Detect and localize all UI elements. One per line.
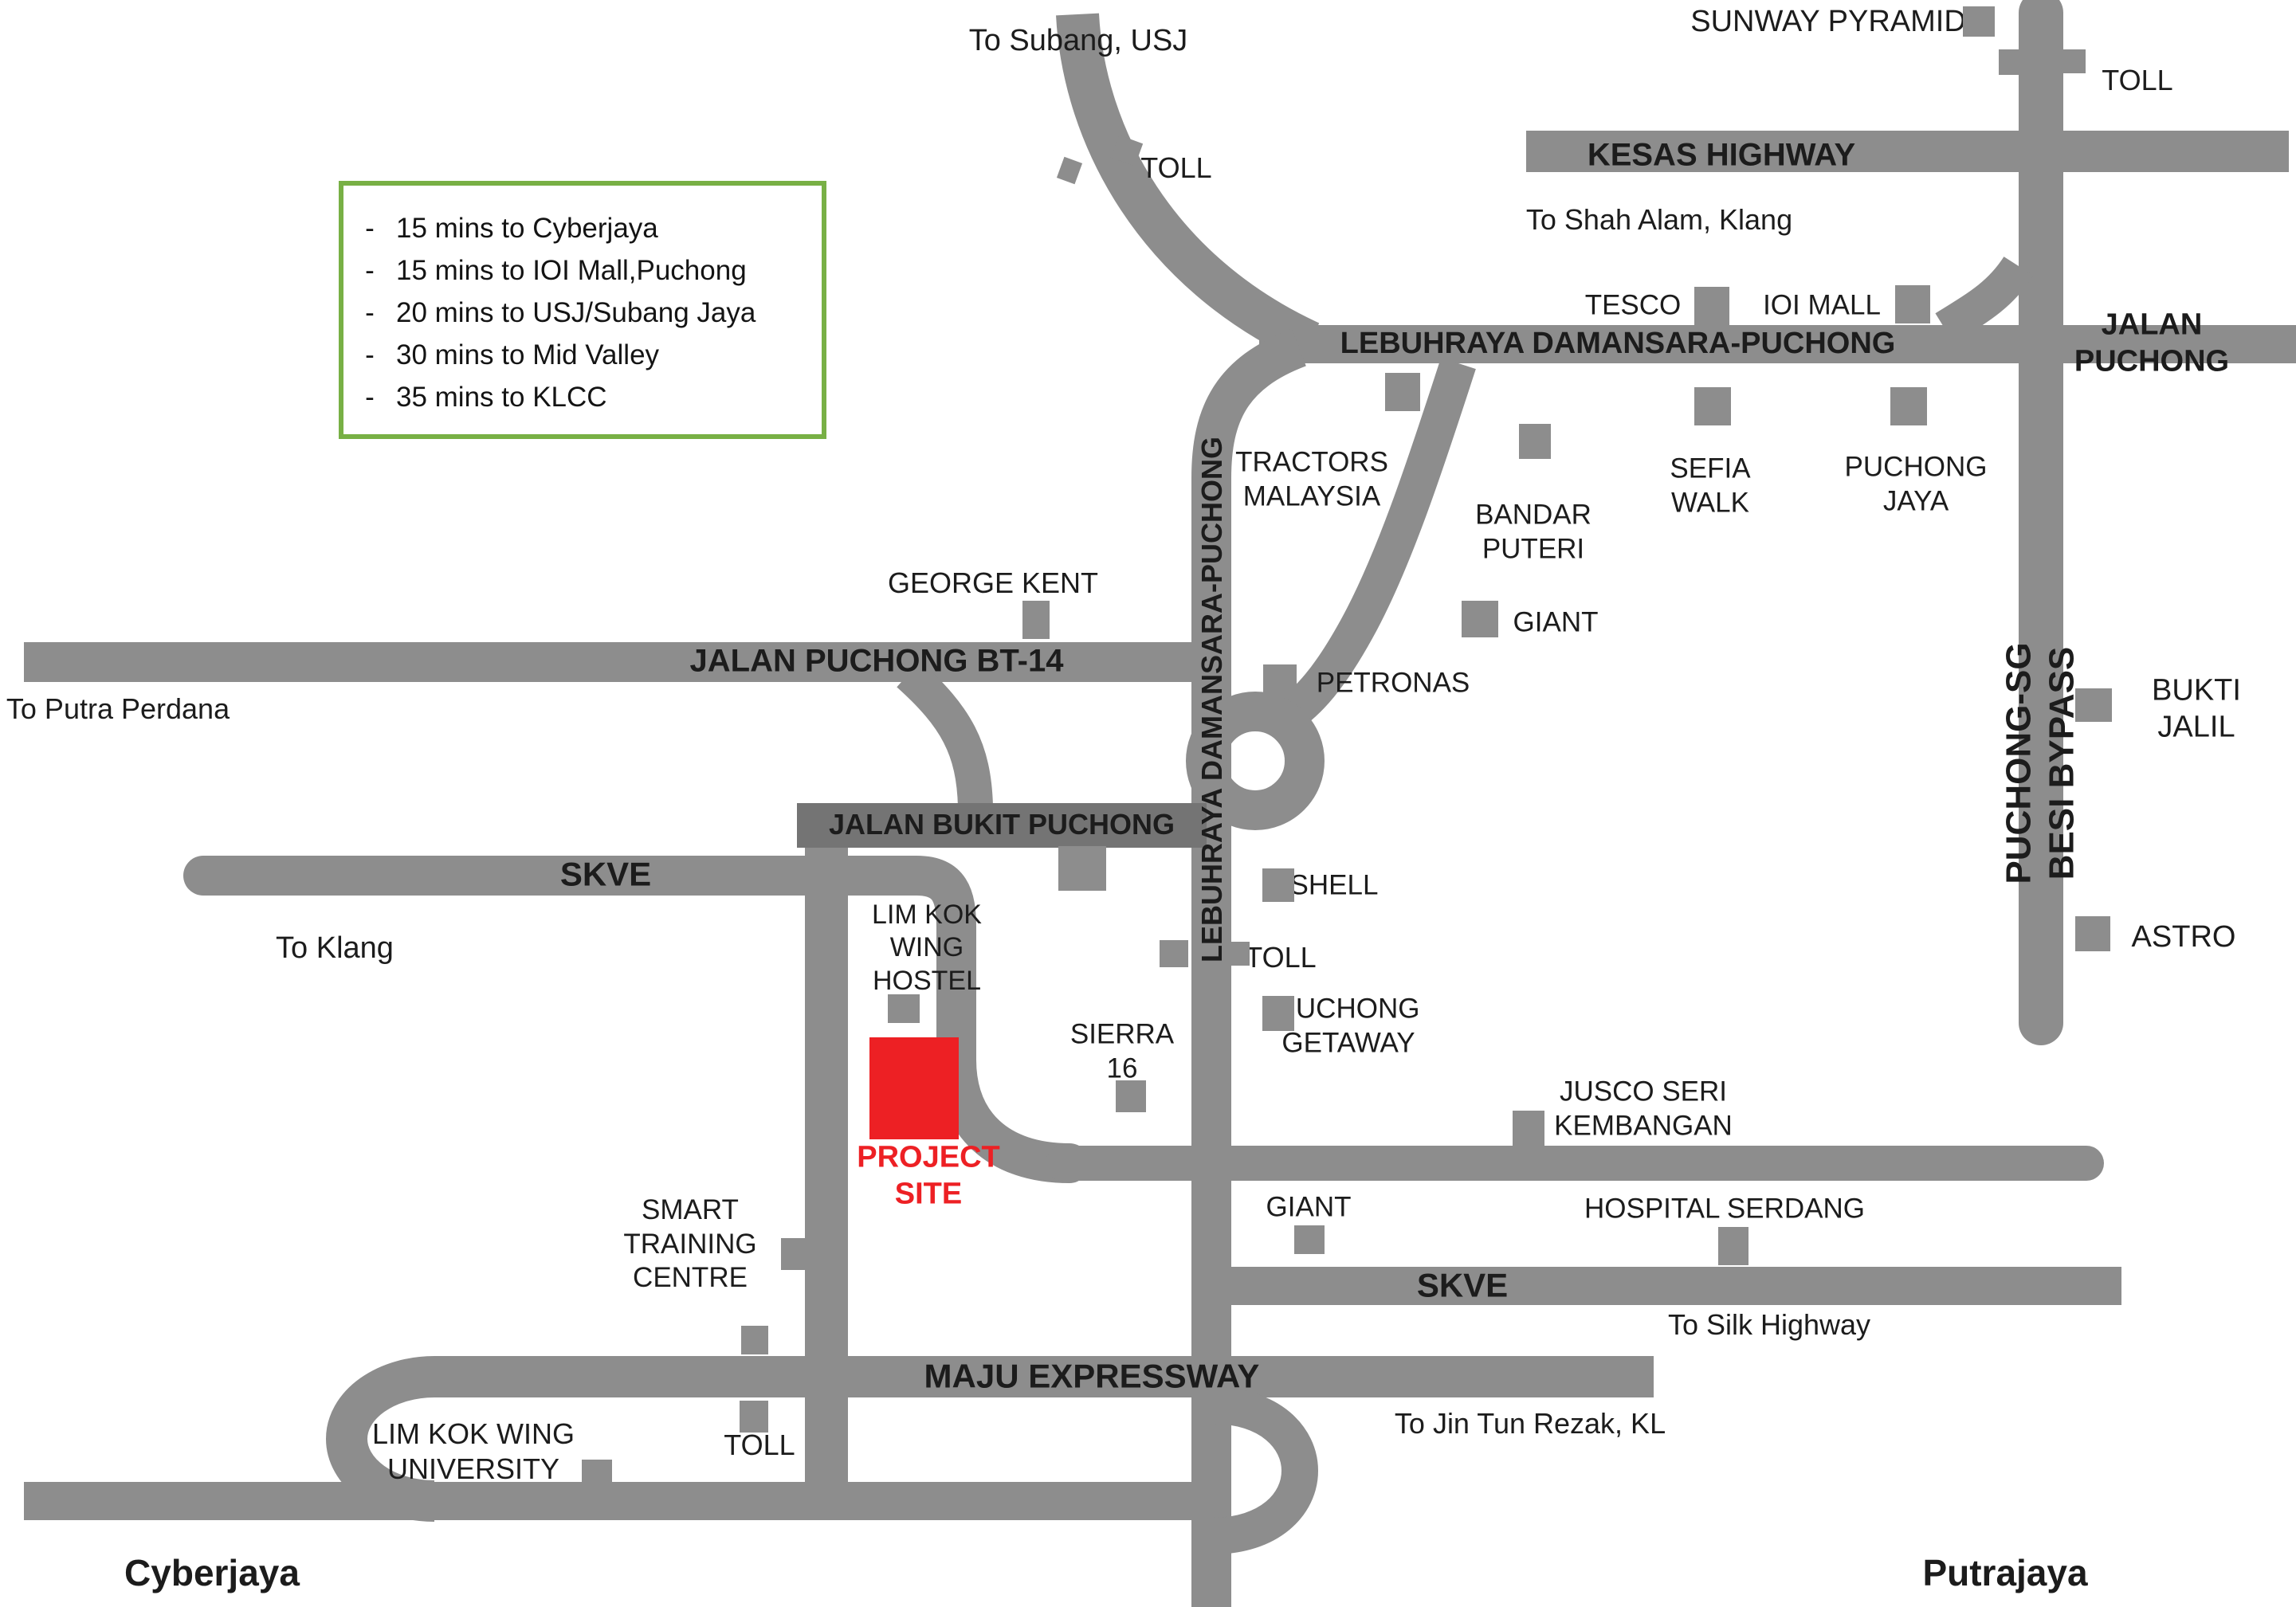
kesas-highway-label-label: KESAS HIGHWAY [1588,136,1855,175]
road-ldp-bypass-ramp [1945,266,2019,328]
tesco-marker [1694,287,1729,325]
legend-item-text: 35 mins to KLCC [396,382,822,414]
bandar-puteri-marker [1519,424,1551,459]
legend-item-text: 15 mins to Cyberjaya [396,213,822,245]
sefia-walk-label: SEFIA WALK [1670,452,1750,519]
sefia-walk-marker [1694,387,1731,425]
legend-bullet: - [343,339,396,371]
toll-ldp-label: TOLL [1245,940,1316,975]
tesco-label: TESCO [1585,289,1682,323]
sunway-pyramid-marker [1963,6,1995,37]
petronas-label: PETRONAS [1317,667,1470,701]
petronas-marker [1263,664,1297,698]
to-shah-alam-klang-label: To Shah Alam, Klang [1526,202,1792,237]
road-ldp-ramp [1285,363,1458,717]
maju-expressway-label-label: MAJU EXPRESSWAY [924,1355,1260,1396]
jalan-puchong-label-label: JALAN PUCHONG [2074,307,2229,381]
legend-bullet: - [343,297,396,329]
tractors-malaysia-label: TRACTORS MALAYSIA [1235,445,1388,513]
jalan-bukit-puchong-label-label: JALAN BUKIT PUCHONG [829,807,1175,842]
ioi-mall-label: IOI MALL [1763,289,1881,323]
toll-ldp-marker-2 [1227,942,1250,966]
project-site-marker [869,1037,959,1139]
george-kent-label: GEORGE KENT [888,566,1098,601]
bukti-jalil-label: BUKTI JALIL [2147,672,2247,747]
shell-label: SHELL [1290,869,1379,903]
giant-bandar-puteri-marker [1462,601,1498,637]
sierra-16-label: SIERRA 16 [1070,1017,1174,1085]
ldp-label-label: LEBUHRAYA DAMANSARA-PUCHONG [1340,325,1896,362]
giant-bandar-puteri-label: GIANT [1513,606,1599,641]
toll-kesas-marker-2 [2063,49,2086,73]
legend-item-4: -35 mins to KLCC [343,382,822,414]
legend-item-2: -20 mins to USJ/Subang Jaya [343,297,822,329]
skve-west-label-label: SKVE [560,853,651,894]
project-site-label: PROJECT SITE [857,1139,999,1213]
legend-item-1: -15 mins to IOI Mall,Puchong [343,255,822,287]
bandar-puteri-label: BANDAR PUTERI [1475,498,1592,566]
to-klang-label: To Klang [276,930,394,966]
skve-east-label-label: SKVE [1417,1264,1508,1305]
hospital-serdang-marker [1718,1227,1748,1265]
toll-maju-label: TOLL [724,1428,795,1463]
giant-serdang-marker [1294,1225,1325,1254]
lim-kok-wing-hostel-marker [888,994,920,1023]
legend-item-text: 30 mins to Mid Valley [396,339,822,371]
legend-item-text: 15 mins to IOI Mall,Puchong [396,255,822,287]
puchong-getaway-marker [1262,996,1294,1031]
road-bt14-branch [909,674,975,806]
to-subang-usj-label: To Subang, USJ [969,22,1188,59]
ioi-mall-marker [1895,285,1930,323]
astro-label: ASTRO [2132,919,2236,955]
jusco-seri-kembangan-marker [1513,1111,1544,1150]
lim-kok-wing-university-label: LIM KOK WING UNIVERSITY [372,1417,575,1487]
sunway-pyramid-label: SUNWAY PYRAMID [1690,3,1966,40]
location-map: -15 mins to Cyberjaya-15 mins to IOI Mal… [0,0,2296,1607]
to-putra-perdana-label: To Putra Perdana [6,692,230,727]
putrajaya-label: Putrajaya [1922,1550,2087,1595]
giant-serdang-label: GIANT [1266,1191,1352,1225]
smart-training-centre-marker [781,1238,811,1270]
legend-bullet: - [343,255,396,287]
toll-kesas-label: TOLL [2102,63,2172,98]
legend-bullet: - [343,213,396,245]
puchong-jaya-label: PUCHONG JAYA [1845,450,1988,518]
jusco-seri-kembangan-label: JUSCO SERI KEMBANGAN [1554,1075,1733,1143]
toll-ldp-marker [1160,940,1188,967]
toll-maju-marker [741,1326,768,1354]
puchong-jaya-marker [1890,387,1927,425]
to-silk-highway-label: To Silk Highway [1668,1307,1870,1342]
hospital-serdang-label: HOSPITAL SERDANG [1584,1193,1865,1227]
shell-marker [1262,868,1294,902]
jalan-bukit-puchong-building-marker [1058,846,1106,891]
puchong-sg-besi-bypass-label-label: PUCHONG-SG BESI BYPASS [1997,636,2082,892]
astro-marker [2075,916,2110,951]
george-kent-marker [1022,601,1050,639]
toll-kesas-marker [1999,49,2021,75]
toll-maju-marker-2 [740,1401,768,1433]
jalan-puchong-bt14-label-label: JALAN PUCHONG BT-14 [690,642,1064,681]
bukti-jalil-marker [2075,688,2112,722]
travel-time-list: -15 mins to Cyberjaya-15 mins to IOI Mal… [343,213,822,414]
legend-item-0: -15 mins to Cyberjaya [343,213,822,245]
legend-item-text: 20 mins to USJ/Subang Jaya [396,297,822,329]
lim-kok-wing-university-marker [582,1460,612,1493]
puchong-getaway-label: PUCHONG GETAWAY [1278,992,1420,1060]
legend-bullet: - [343,382,396,414]
tractors-malaysia-marker [1385,373,1420,411]
legend-item-3: -30 mins to Mid Valley [343,339,822,371]
smart-training-centre-label: SMART TRAINING CENTRE [623,1193,756,1295]
lim-kok-wing-hostel-label: LIM KOK WING HOSTEL [872,899,982,998]
sierra-16-marker [1116,1080,1146,1112]
ldp-vertical-label-label: LEBUHRAYA DAMANSARA-PUCHONG [1195,437,1230,962]
toll-subang-label: TOLL [1140,151,1211,186]
cyberjaya-label: Cyberjaya [124,1550,300,1595]
travel-time-legend: -15 mins to Cyberjaya-15 mins to IOI Mal… [339,181,826,439]
to-jin-tun-rezak-label: To Jin Tun Rezak, KL [1395,1406,1666,1441]
